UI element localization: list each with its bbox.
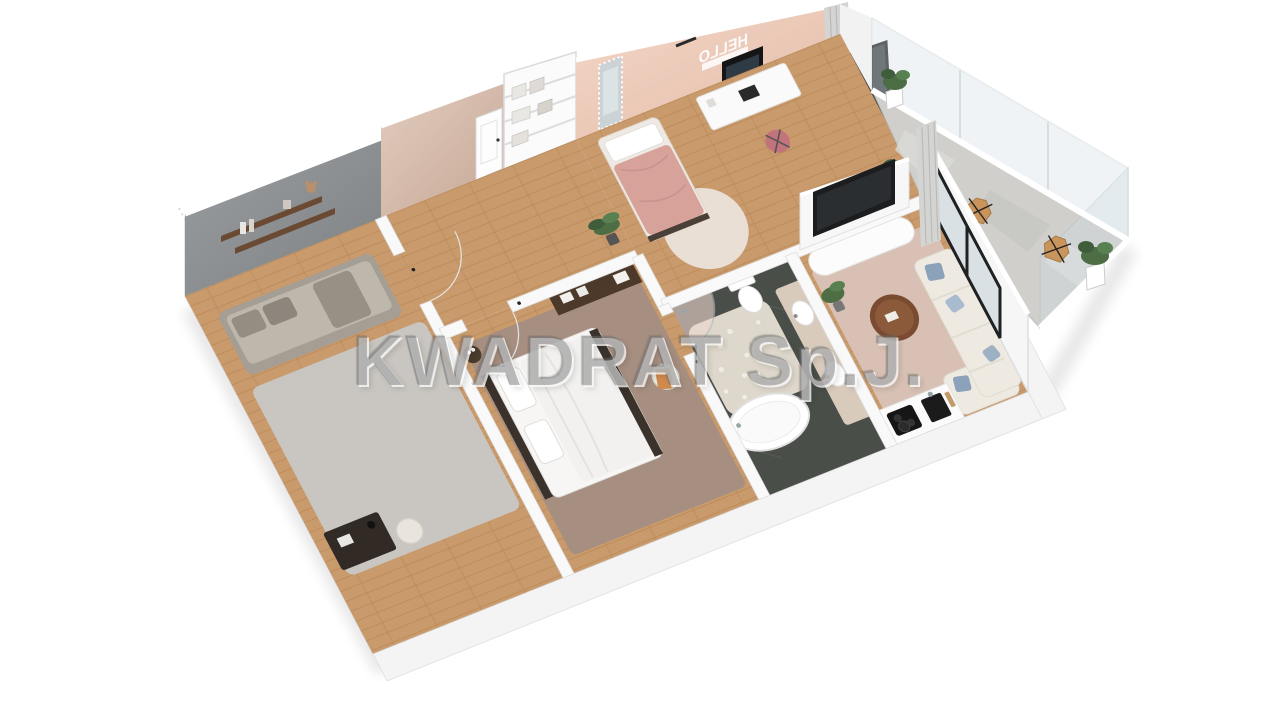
door-handle [496, 138, 499, 141]
shelf-box [283, 200, 291, 209]
hall-door [476, 108, 502, 180]
mirror-reflection [603, 66, 618, 116]
apartment-3d-floor-plan: HELLO [0, 0, 1280, 720]
books [249, 219, 254, 232]
teddy-ear [305, 181, 309, 185]
books [240, 222, 246, 234]
floor-plan-screenshot: HELLO [0, 0, 1280, 720]
teddy-ear [313, 181, 317, 185]
